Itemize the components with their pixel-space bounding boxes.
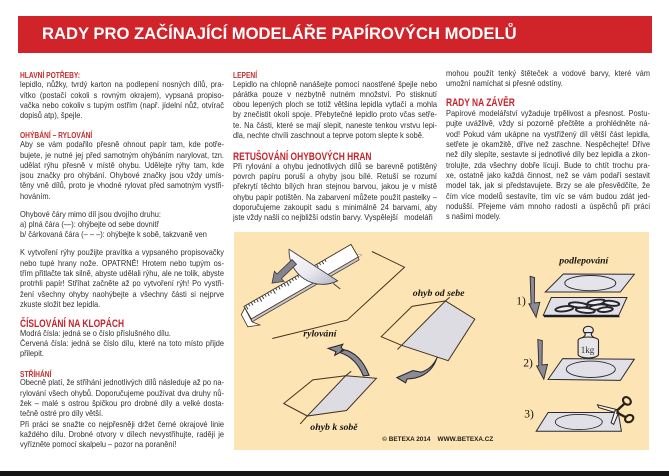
svg-text:© BETEXA 2014 WWW.BETEXA.CZ: © BETEXA 2014 WWW.BETEXA.CZ	[382, 435, 493, 443]
svg-text:1): 1)	[516, 296, 526, 308]
svg-text:rylování: rylování	[303, 328, 337, 339]
svg-text:ohyb k sobě: ohyb k sobě	[310, 422, 358, 433]
svg-text:1kg: 1kg	[580, 345, 594, 355]
svg-text:podlepování: podlepování	[558, 255, 609, 266]
svg-text:3): 3)	[524, 409, 534, 421]
svg-text:ohyb od sebe: ohyb od sebe	[412, 288, 464, 299]
svg-text:2): 2)	[523, 358, 533, 370]
